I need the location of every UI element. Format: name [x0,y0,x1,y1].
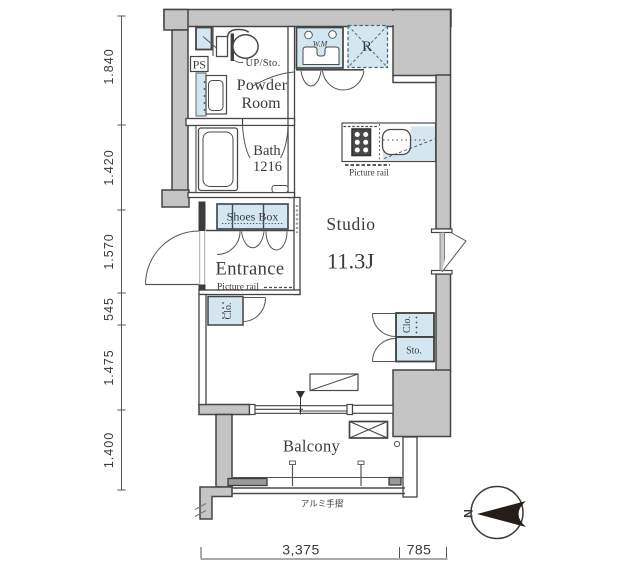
svg-text:Picture rail: Picture rail [217,283,259,293]
svg-text:11.3J: 11.3J [327,249,375,274]
svg-text:3,375: 3,375 [282,542,320,558]
svg-text:Powder: Powder [237,77,288,94]
svg-text:1.840: 1.840 [102,48,116,84]
svg-text:Room: Room [241,95,281,112]
svg-text:PS: PS [193,57,206,71]
svg-text:W.M: W.M [313,40,329,49]
svg-text:Entrance: Entrance [216,260,285,280]
svg-text:Picture rail: Picture rail [349,168,389,178]
svg-text:UP/Sto.: UP/Sto. [245,58,280,69]
svg-text:Clo.: Clo. [223,303,234,320]
svg-text:1216: 1216 [253,159,282,175]
svg-text:Studio: Studio [326,214,375,234]
svg-text:1.420: 1.420 [102,149,116,185]
svg-text:1.400: 1.400 [102,432,116,468]
svg-text:Sto.: Sto. [406,346,422,357]
svg-text:1.570: 1.570 [102,233,116,269]
svg-text:Shoes Box: Shoes Box [227,210,279,224]
svg-text:Bath: Bath [253,143,281,159]
svg-text:アルミ手摺: アルミ手摺 [301,499,343,509]
svg-text:Balcony: Balcony [283,437,341,456]
svg-text:Clo.: Clo. [402,316,413,333]
svg-text:785: 785 [407,542,432,558]
svg-text:N: N [462,509,476,518]
svg-text:R: R [362,39,372,55]
svg-text:1.475: 1.475 [102,349,116,385]
svg-text:545: 545 [102,297,116,321]
